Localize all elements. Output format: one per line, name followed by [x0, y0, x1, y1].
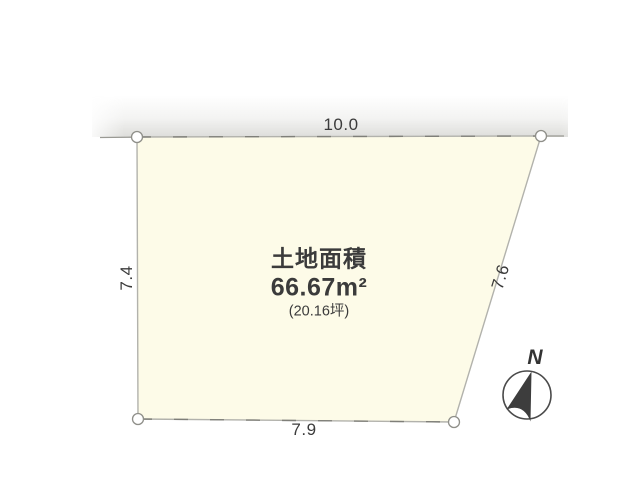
plot-drawing	[0, 0, 628, 480]
corner-marker-top-left	[132, 132, 143, 143]
dimension-label-bottom: 7.9	[291, 420, 316, 440]
area-info: 土地面積 66.67m² (20.16坪)	[271, 246, 368, 321]
compass-north-label: N	[527, 346, 542, 370]
area-value-tsubo: (20.16坪)	[271, 305, 368, 321]
dimension-label-top: 10.0	[323, 115, 358, 135]
compass-rose	[503, 371, 551, 422]
dimension-label-left: 7.4	[117, 265, 137, 290]
land-plot-diagram: 10.0 7.9 7.4 7.6 土地面積 66.67m² (20.16坪) N	[0, 0, 628, 480]
area-title: 土地面積	[271, 246, 368, 272]
area-value-m2: 66.67m²	[271, 275, 368, 303]
corner-marker-bottom-right	[449, 417, 460, 428]
corner-marker-bottom-left	[133, 414, 144, 425]
corner-marker-top-right	[536, 131, 547, 142]
